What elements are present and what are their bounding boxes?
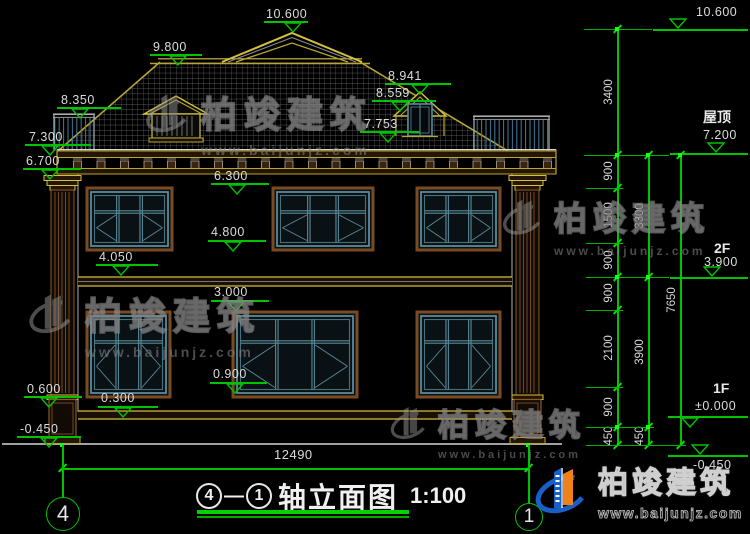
elevation-marker-line [653, 29, 748, 31]
elevation-triangle [169, 55, 187, 66]
cad-grip [615, 153, 619, 157]
elevation-label: 9.800 [153, 41, 187, 54]
dim-extension-line [586, 243, 623, 244]
elevation-triangle [391, 101, 409, 112]
elevation-triangle [40, 437, 58, 448]
elevation-label: 3.000 [214, 286, 248, 299]
dim-extension-line [586, 427, 654, 428]
dim-chain-value: 450 [634, 426, 646, 445]
dim-extension-line [586, 310, 623, 311]
floor-label: 屋顶 [703, 110, 731, 124]
eave-cornice [57, 150, 556, 174]
elevation-triangle [40, 397, 58, 408]
floor-label: 1F [713, 381, 729, 395]
elevation-label: 10.600 [696, 6, 737, 19]
elevation-label: 0.600 [27, 383, 61, 396]
elevation-label: 4.800 [211, 226, 245, 239]
dim-extension-line [586, 445, 686, 446]
dim-chain-value: 900 [603, 397, 615, 416]
cad-grip [678, 153, 682, 157]
elevation-triangle [379, 132, 397, 143]
overall-dimension-value: 12490 [274, 448, 313, 461]
elevation-label: 0.900 [213, 368, 247, 381]
elevation-triangle [411, 84, 429, 95]
dim-chain-value: 900 [603, 283, 615, 302]
dim-chain-value: 900 [603, 250, 615, 269]
elevation-marker-line [668, 455, 748, 457]
elevation-triangle [681, 417, 699, 428]
dim-chain-value: 450 [603, 426, 615, 445]
elevation-triangle [284, 22, 302, 33]
window [87, 312, 170, 397]
window [233, 312, 357, 397]
dim-chain-value: 3900 [634, 339, 646, 365]
axis-line [62, 445, 64, 497]
elevation-label: 0.300 [101, 392, 135, 405]
elevation-marker-line [57, 107, 121, 109]
elevation-marker-line [670, 277, 748, 279]
elevation-label: 7.200 [703, 129, 737, 142]
elevation-label: 4.050 [99, 251, 133, 264]
elevation-triangle [228, 184, 246, 195]
elevation-label: 8.559 [376, 87, 410, 100]
windows [87, 188, 500, 397]
axis-bubble: 4 [46, 497, 80, 531]
elevation-triangle [71, 108, 89, 119]
elevation-label: 6.300 [214, 170, 248, 183]
cad-grip [646, 275, 650, 279]
window [87, 188, 172, 250]
right-railing [473, 116, 550, 151]
cad-grip [615, 27, 619, 31]
elevation-triangle [114, 407, 132, 418]
dim-extension-line [586, 277, 669, 278]
elevation-label: ±0.000 [695, 400, 736, 413]
right-pilaster [509, 176, 546, 444]
title-dash: — [224, 485, 244, 508]
title-underline-2 [197, 516, 409, 518]
elevation-label: 8.941 [388, 70, 422, 83]
brand-logo-url: www.baijunjz.com [598, 505, 743, 521]
elevation-label: 6.700 [26, 155, 60, 168]
dim-extension-line [584, 155, 669, 156]
cad-grip [615, 425, 619, 429]
window [417, 312, 500, 397]
elevation-label: 7.300 [29, 131, 63, 144]
roof [58, 33, 508, 151]
title-underline [197, 510, 409, 514]
cad-elevation-drawing: 10.6009.8008.3507.3006.7008.9418.5597.75… [0, 0, 750, 534]
dim-chain-line [680, 155, 682, 445]
window [273, 188, 373, 250]
elevation-triangle [112, 265, 130, 276]
axis-bubble-1-title: 1 [246, 483, 272, 509]
dim-chain-line [617, 29, 619, 445]
dim-chain-line [648, 155, 650, 445]
dim-chain-value: 7650 [666, 287, 678, 313]
dim-chain-value: 3300 [634, 203, 646, 229]
floor-label: 2F [714, 241, 730, 255]
elevation-label: 8.350 [61, 94, 95, 107]
dim-chain-value: 2100 [603, 335, 615, 361]
elevation-triangle [224, 241, 242, 252]
brand-logo: 柏竣建筑 www.baijunjz.com [532, 458, 743, 521]
elevation-triangle [227, 301, 245, 312]
window [417, 188, 500, 250]
elevation-label: 10.600 [266, 8, 307, 21]
dim-chain-value: 900 [603, 161, 615, 180]
elevation-triangle [707, 142, 725, 153]
elevation-triangle [669, 18, 687, 29]
elevation-label: 7.753 [364, 118, 398, 131]
overall-dimension-line [62, 468, 528, 470]
cad-grip [646, 153, 650, 157]
elevation-triangle [41, 169, 59, 180]
dim-chain-value: 1500 [603, 202, 615, 228]
elevation-triangle [703, 266, 721, 277]
brand-logo-text: 柏竣建筑 [598, 458, 743, 502]
axis-line [528, 445, 530, 503]
axis-bubble-4-title: 4 [196, 483, 222, 509]
brand-logo-icon [532, 458, 594, 520]
elevation-triangle [691, 444, 709, 455]
elevation-triangle [226, 383, 244, 394]
dim-chain-value: 3400 [603, 79, 615, 105]
cad-grip [615, 275, 619, 279]
elevation-label: -0.450 [20, 423, 58, 436]
title-scale: 1:100 [410, 483, 466, 509]
cad-grip [646, 425, 650, 429]
dim-extension-line [586, 387, 623, 388]
dim-extension-line [586, 188, 623, 189]
